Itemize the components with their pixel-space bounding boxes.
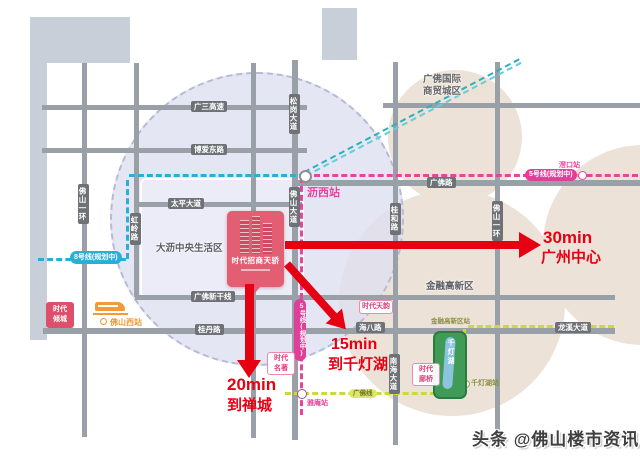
metro-line5-seg-horizontal xyxy=(305,174,638,177)
road-taiping-avenue xyxy=(135,202,302,207)
tag-times-langqiao-l1: 时代 xyxy=(415,365,437,375)
tag-times-tianyun: 时代天韵 xyxy=(359,300,393,314)
label-15min: 15min xyxy=(331,336,377,354)
label-to-chancheng: 到禅城 xyxy=(227,394,272,415)
decor-block-leftstrip xyxy=(30,17,47,340)
building-tower-right xyxy=(263,223,272,254)
metro-line8-seg-east xyxy=(129,174,305,177)
tag-times-qingcheng-l1: 时代 xyxy=(48,305,72,315)
road-label-foshan-ring-west: 佛山一环 xyxy=(78,184,89,224)
station-marker-yaan xyxy=(297,389,307,399)
metro-line5-label-vertical: 5号线(规划中) xyxy=(294,299,306,361)
road-label-foshan-ring-east: 佛山一环 xyxy=(492,201,503,241)
station-marker-jiaokou xyxy=(578,171,587,180)
location-map: 8号线(规划中) 5号线(规划中) 5号线(规划中) 滘口站 沥西站 雅庵站 金… xyxy=(0,0,640,457)
station-lixi-label: 沥西站 xyxy=(307,184,340,200)
building-tower-mid xyxy=(252,216,260,254)
tag-times-langqiao-l2: 廊桥 xyxy=(415,375,437,385)
road-label-longxi-avenue: 龙溪大道 xyxy=(555,322,591,333)
area-gfic-label: 广佛国际 商贸城区 xyxy=(423,74,461,97)
train-icon xyxy=(95,302,125,311)
station-badge-icon xyxy=(100,318,107,325)
project-name-label: 时代招商天骄 xyxy=(227,255,284,266)
guangfo-line-seg-longxi xyxy=(468,325,614,328)
metro-line5-label-horizontal: 5号线(规划中) xyxy=(525,169,577,181)
project-subtitle-line xyxy=(241,269,270,271)
road-label-guangfo-new-trunk: 广佛新干线 xyxy=(191,291,235,302)
area-gfic-line2: 商贸城区 xyxy=(423,86,461,98)
road-label-haiba-road: 海八路 xyxy=(356,322,385,333)
label-guangzhou-center: 广州中心 xyxy=(541,246,601,267)
road-label-boai-east: 博爱东路 xyxy=(191,144,227,155)
road-label-guihe-road: 桂和路 xyxy=(390,203,401,235)
foshan-west-station-label: 佛山西站 xyxy=(110,317,142,328)
decor-block-topcenter xyxy=(322,8,357,60)
station-jiaokou-label: 滘口站 xyxy=(559,160,580,170)
arrow-to-guangzhou-head xyxy=(519,232,541,258)
guangfo-line-label: 广佛线 xyxy=(349,389,377,398)
lake-qiandenghu-label: 千灯湖 xyxy=(445,339,455,366)
road-guidan-haiba-longxi xyxy=(43,328,615,334)
tag-times-qingcheng-l2: 倾城 xyxy=(48,315,72,325)
metro-line5-seg-vertical xyxy=(300,177,303,415)
road-label-foshan-avenue: 佛山大道 xyxy=(289,187,300,227)
road-label-nanhai-avenue: 南海大道 xyxy=(389,354,400,394)
road-label-guangfo-road: 广佛路 xyxy=(427,177,456,188)
label-to-qiandenghu: 到千灯湖 xyxy=(328,353,388,374)
road-label-songgang-avenue: 松岗大道 xyxy=(289,94,300,134)
arrow-to-chancheng-shaft xyxy=(245,284,254,362)
arrow-to-guangzhou-shaft xyxy=(285,241,521,249)
area-financial-hitech-label: 金融高新区 xyxy=(426,278,474,292)
watermark: 头条 @佛山楼市资讯 xyxy=(472,425,639,450)
train-stripe xyxy=(98,305,118,307)
label-20min: 20min xyxy=(227,375,276,395)
rail-line xyxy=(93,313,128,315)
road-label-guidan-road: 桂丹路 xyxy=(195,324,224,335)
road-label-guangsan-expressway: 广三高速 xyxy=(191,101,227,112)
tag-times-mingzhu-l2: 名著 xyxy=(270,364,292,374)
building-tower-left xyxy=(240,220,249,254)
station-marker-lixi xyxy=(299,170,312,183)
area-dali-central-label: 大沥中央生活区 xyxy=(156,240,223,254)
road-top-right xyxy=(383,103,640,108)
label-30min: 30min xyxy=(543,228,592,248)
tag-times-mingzhu-l1: 时代 xyxy=(270,354,292,364)
road-honglin xyxy=(134,63,139,297)
project-building-icon: 时代招商天骄 xyxy=(227,211,284,287)
road-label-honglin-road: 虹岭路 xyxy=(130,213,141,245)
road-guangfo-road xyxy=(295,180,640,186)
station-jinrong-gaoxin-label: 金融高新区站 xyxy=(431,315,470,325)
metro-line8-label: 8号线(规划中) xyxy=(70,251,122,264)
station-qiandenghu-label: 千灯湖站 xyxy=(471,378,499,388)
tag-times-qingcheng: 时代 倾城 xyxy=(46,302,74,328)
station-yaan-label: 雅庵站 xyxy=(307,398,328,408)
tag-times-langqiao: 时代 廊桥 xyxy=(412,363,440,386)
area-gfic-line1: 广佛国际 xyxy=(423,74,461,86)
tag-times-mingzhu: 时代 名著 xyxy=(267,352,295,375)
road-label-taiping-avenue: 太平大道 xyxy=(168,198,204,209)
road-foshan-ring-west xyxy=(82,63,87,437)
